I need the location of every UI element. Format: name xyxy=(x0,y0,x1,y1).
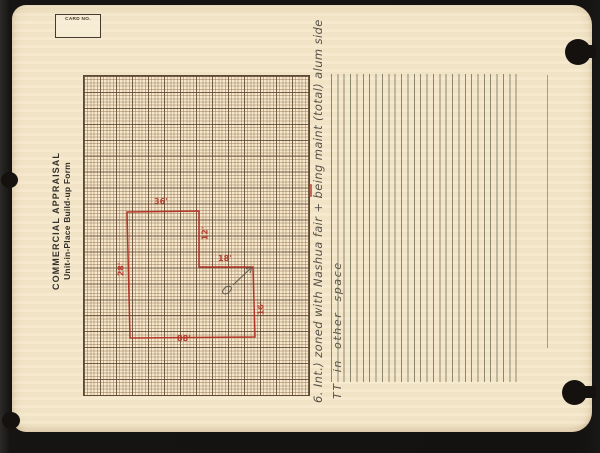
dimension-label-right: 16' xyxy=(256,302,265,316)
form-title-line1: COMMERCIAL APPRAISAL xyxy=(51,146,61,296)
dimension-label-notch-horizontal: 18' xyxy=(218,254,232,263)
dimension-label-notch-vertical: 12' xyxy=(200,227,209,241)
card-no-box: CARD NO. xyxy=(55,14,101,38)
scanned-appraisal-card: CARD NO. COMMERCIAL APPRAISAL Unit-in-Pl… xyxy=(0,0,600,453)
form-title: COMMERCIAL APPRAISAL Unit-in-Place Build… xyxy=(51,146,72,296)
left-edge-hole-artifact-bottom xyxy=(2,412,20,429)
graph-grid-panel xyxy=(83,75,310,396)
red-pencil-tick xyxy=(309,184,312,197)
form-title-line2: Unit-in-Place Build-up Form xyxy=(62,146,72,296)
ruled-lines-panel xyxy=(331,74,522,382)
dimension-label-top: 36' xyxy=(154,197,168,206)
dimension-label-bottom: 88' xyxy=(177,334,191,343)
ruled-line-edge xyxy=(547,75,548,348)
handwritten-note-line2: TT in other space xyxy=(331,261,344,399)
punch-hole-bottom-notch xyxy=(579,386,596,398)
punch-hole-top-notch xyxy=(582,45,596,58)
dimension-label-left: 28' xyxy=(116,263,125,277)
card-no-label: CARD NO. xyxy=(61,17,95,22)
handwritten-note-line1: 6. Int.) zoned with Nashua fair + being … xyxy=(311,19,325,403)
left-edge-hole-artifact-top xyxy=(1,172,18,188)
